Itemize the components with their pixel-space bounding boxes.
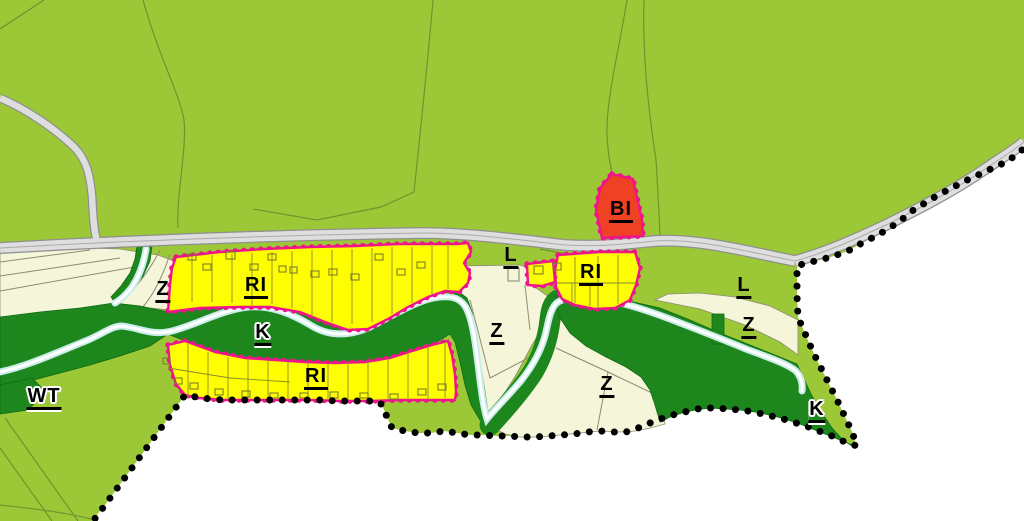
zone-label-l-east: L [736,275,751,299]
zone-label-ri-upper: RI [244,275,268,299]
zone-label-bi: BI [609,199,633,223]
zone-label-z-center-south: Z [599,374,614,398]
zone-label-z-east: Z [741,315,756,339]
zone-label-ri-center: RI [579,262,603,286]
zoning-map-canvas[interactable]: Z RI K RI L RI BI Z Z L Z K WT [0,0,1024,521]
zone-label-k-southeast: K [808,399,825,423]
zone-label-l-center: L [503,245,518,269]
zone-label-k-corridor: K [254,322,271,346]
zone-label-z-center: Z [489,321,504,345]
zone-label-ri-lower: RI [304,366,328,390]
zone-label-wt: WT [26,386,61,410]
zone-label-z-west: Z [155,279,170,303]
